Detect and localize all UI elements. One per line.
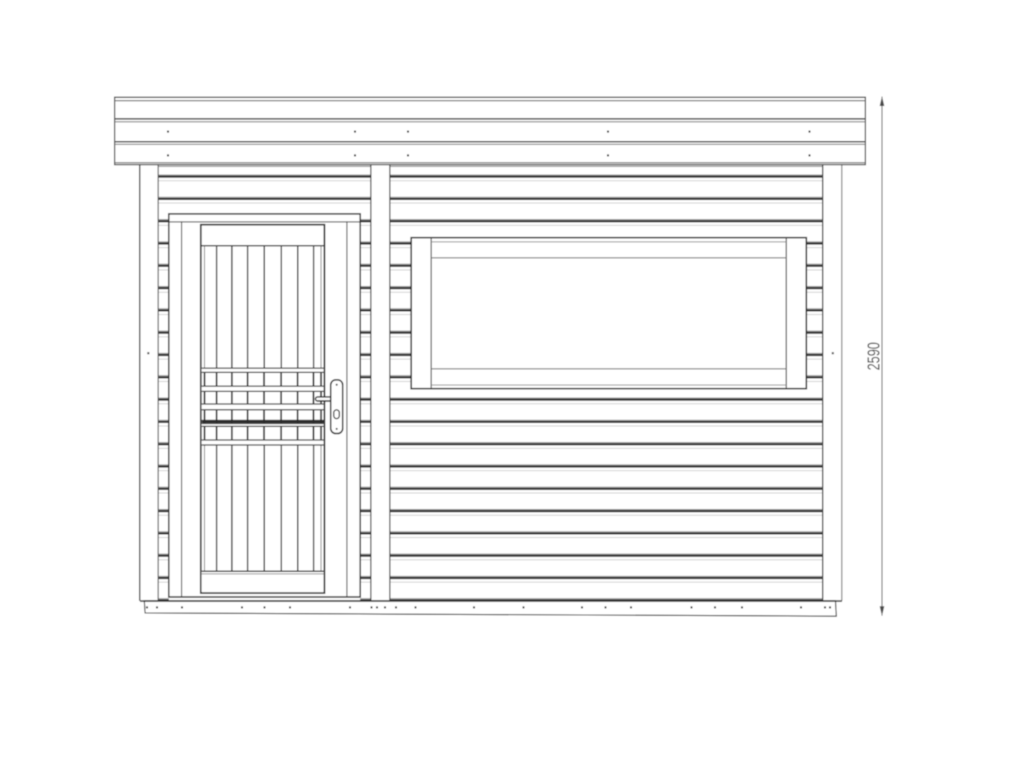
svg-text:2590: 2590 — [865, 342, 884, 370]
